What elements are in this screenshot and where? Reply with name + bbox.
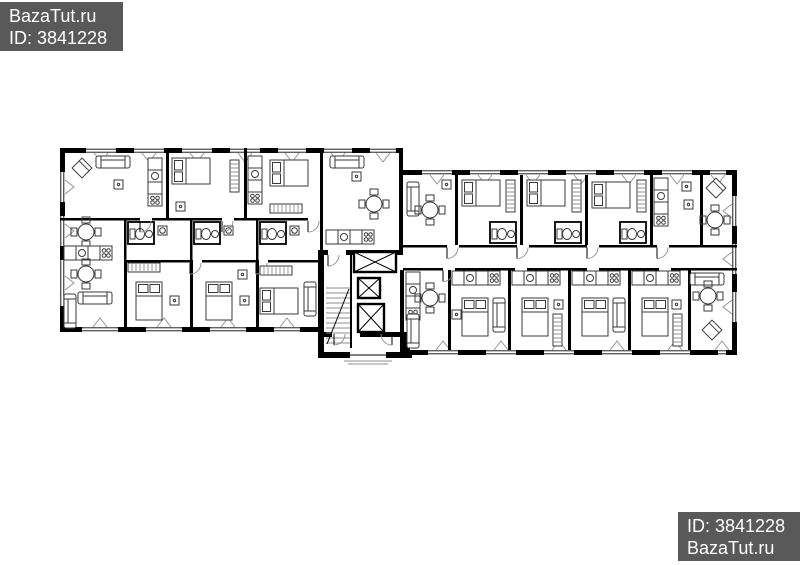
- bed-icon: [136, 282, 162, 320]
- wardrobe-icon: [260, 266, 292, 275]
- toilet-icon: [492, 229, 515, 240]
- wardrobe-icon: [637, 180, 646, 212]
- page: BazaTut.ru ID: 3841228 ID: 3841228 BazaT…: [0, 0, 800, 565]
- sofa-icon: [78, 292, 112, 304]
- bed-icon: [592, 182, 630, 208]
- coffee-table-icon: [352, 172, 361, 181]
- door-swing-icon: [308, 221, 319, 232]
- wardrobe-icon: [673, 314, 682, 346]
- watermark-listing-id: ID: 3841228: [687, 515, 792, 537]
- kitchen-counter-icon: [452, 271, 500, 285]
- stair-elevator-core: [318, 250, 412, 364]
- bed-icon: [270, 160, 308, 186]
- door-swing-icon: [657, 248, 668, 259]
- toilet-icon: [622, 229, 645, 240]
- sofa-icon: [330, 156, 364, 168]
- elevator-icon: [358, 304, 384, 332]
- bed-icon: [642, 298, 668, 336]
- nightstand-icon: [452, 310, 461, 319]
- nightstand-icon: [238, 270, 247, 279]
- coffee-table-icon: [442, 180, 451, 189]
- bed-icon: [172, 158, 210, 184]
- sofa-icon: [407, 182, 419, 216]
- sofa-icon: [493, 298, 505, 332]
- wardrobe-icon: [230, 160, 239, 192]
- dining-table-icon: [71, 217, 101, 247]
- bed-icon: [582, 298, 608, 336]
- kitchen-counter-icon: [64, 246, 112, 260]
- nightstand-icon: [240, 296, 249, 305]
- nightstand-icon: [170, 296, 179, 305]
- wardrobe-icon: [553, 314, 562, 346]
- bathrooms: [128, 222, 646, 244]
- door-swing-icon: [447, 248, 458, 259]
- toilet-icon: [130, 229, 153, 240]
- floor-plan: [0, 0, 800, 565]
- door-swing-icon: [587, 248, 598, 259]
- dining-table-icon: [71, 259, 101, 289]
- sofa-icon: [407, 314, 419, 348]
- bed-icon: [462, 298, 488, 336]
- dresser-icon: [682, 182, 691, 191]
- door-swing-icon: [328, 255, 339, 266]
- kitchen-counter-icon: [572, 271, 620, 285]
- kitchen-counter-icon: [406, 272, 420, 320]
- wardrobe-icon: [572, 180, 581, 212]
- kitchen-counter-icon: [512, 271, 560, 285]
- bed-icon: [527, 180, 565, 206]
- toilet-icon: [557, 229, 580, 240]
- kitchen-counter-icon: [326, 230, 374, 244]
- elevator-icon: [354, 252, 396, 272]
- dresser-icon: [684, 200, 693, 209]
- sofa-icon: [64, 294, 76, 328]
- wardrobe-icon: [270, 204, 302, 213]
- watermark-listing-id: ID: 3841228: [9, 27, 115, 49]
- watermark-bottom-right: ID: 3841228 BazaTut.ru: [678, 512, 800, 561]
- washing-machine-icon: [224, 226, 233, 235]
- watermark-site-name: BazaTut.ru: [687, 537, 792, 559]
- entrance-canopy: [344, 361, 392, 364]
- toilet-icon: [196, 229, 219, 240]
- door-swing-icon: [517, 248, 528, 259]
- kitchen-counter-icon: [148, 158, 162, 206]
- bed-icon: [260, 288, 298, 314]
- kitchen-counter-icon: [248, 156, 262, 204]
- nightstand-icon: [554, 300, 563, 309]
- elevator-icon: [358, 278, 380, 298]
- sofa-icon: [96, 156, 130, 168]
- armchair-icon: [702, 320, 722, 340]
- wardrobe-icon: [506, 180, 515, 212]
- armchair-icon: [72, 158, 92, 178]
- bed-icon: [206, 282, 232, 320]
- wardrobe-icon: [128, 263, 160, 272]
- dresser-icon: [176, 202, 185, 211]
- coffee-table-icon: [114, 180, 123, 189]
- sofa-icon: [304, 282, 316, 316]
- kitchen-counter-icon: [632, 271, 680, 285]
- bed-icon: [522, 298, 548, 336]
- dining-table-icon: [359, 189, 389, 219]
- washing-machine-icon: [290, 226, 299, 235]
- watermark-top-left: BazaTut.ru ID: 3841228: [0, 2, 123, 51]
- watermark-site-name: BazaTut.ru: [9, 5, 115, 27]
- sofa-icon: [690, 273, 724, 285]
- armchair-icon: [706, 178, 726, 198]
- washing-machine-icon: [158, 226, 167, 235]
- sofa-icon: [613, 298, 625, 332]
- nightstand-icon: [672, 300, 681, 309]
- toilet-icon: [262, 229, 285, 240]
- kitchen-counter-icon: [654, 178, 668, 226]
- bed-icon: [462, 180, 500, 206]
